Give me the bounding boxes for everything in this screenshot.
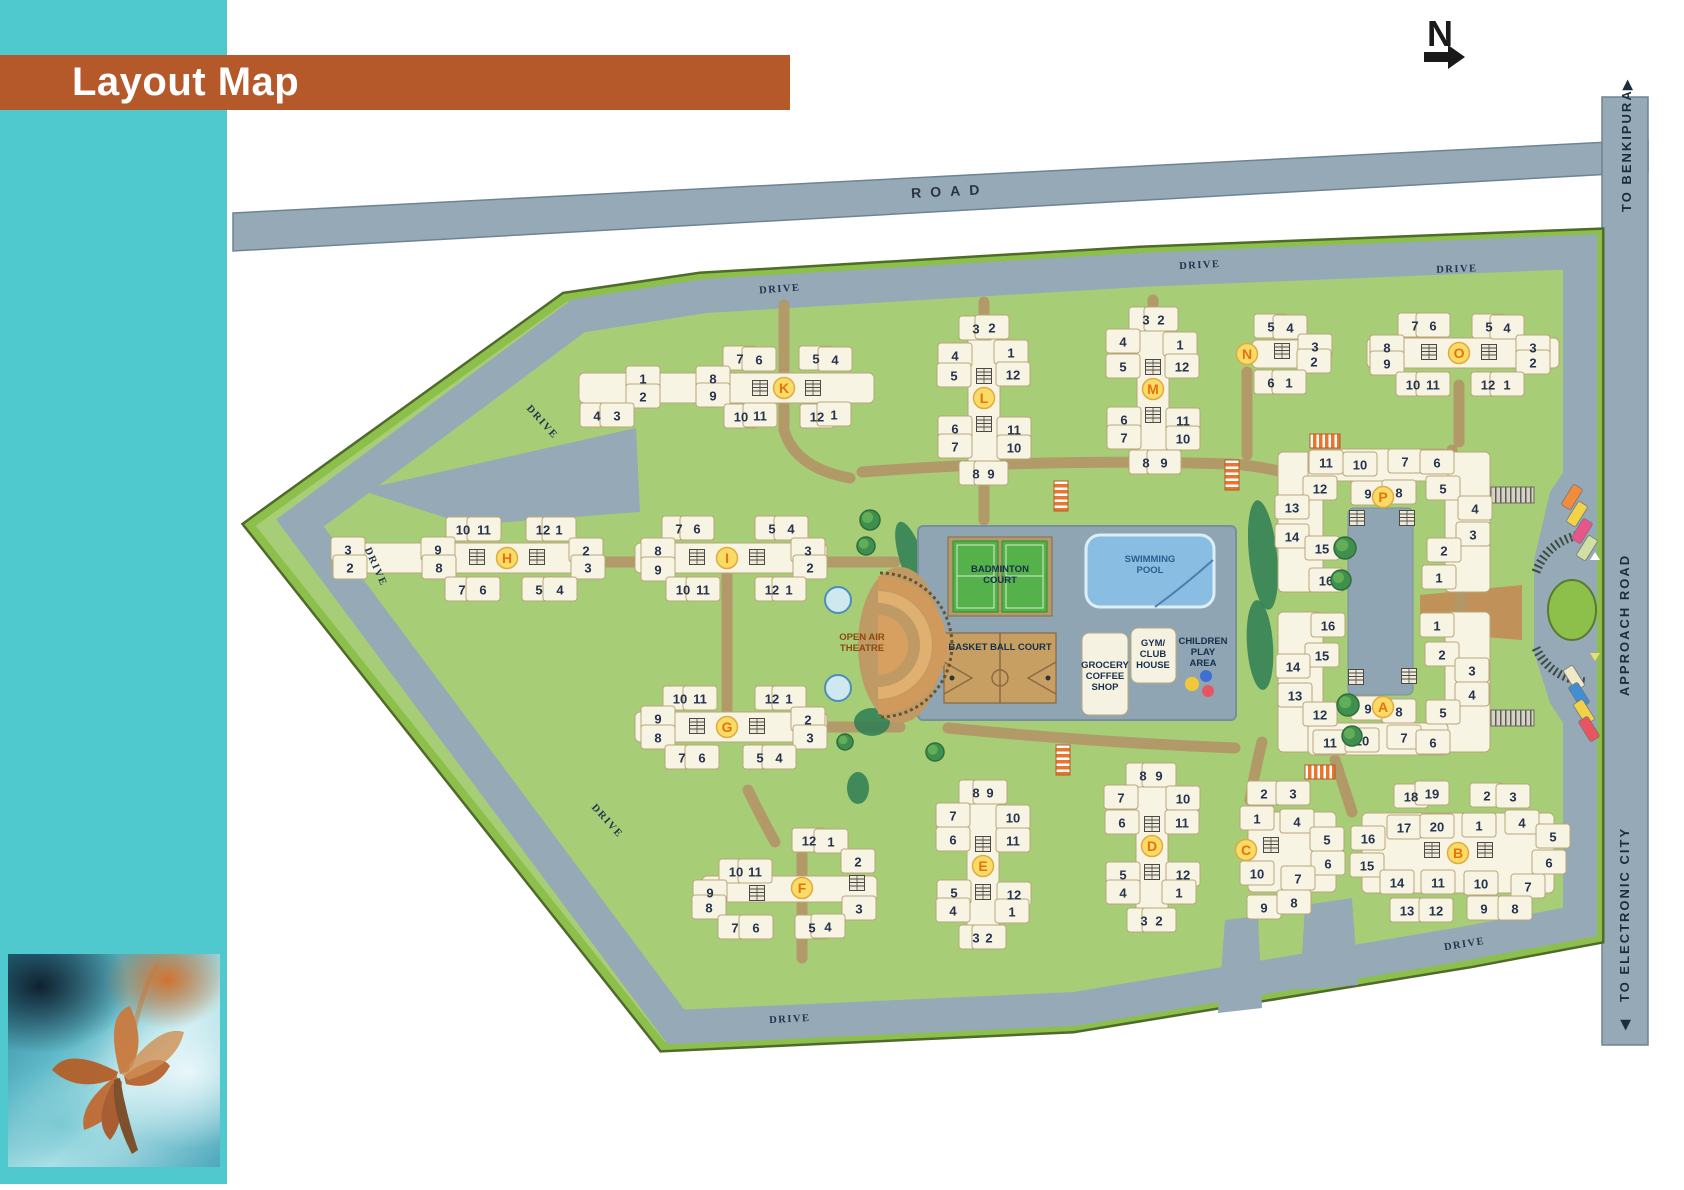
- unit-number: 5: [950, 886, 957, 901]
- stairwell-icon: [753, 381, 768, 396]
- stairwell-icon: [1425, 843, 1440, 858]
- unit-number: 2: [1438, 648, 1445, 663]
- unit-number: 15: [1360, 859, 1374, 874]
- unit-number: 10: [673, 692, 687, 707]
- unit-number: 10: [729, 865, 743, 880]
- stairwell-icon: [977, 369, 992, 384]
- unit-number: 4: [831, 353, 839, 368]
- unit-number: 4: [787, 522, 795, 537]
- play-area-dot: [1202, 685, 1214, 697]
- unit-number: 4: [1518, 816, 1526, 831]
- unit-number: 11: [1175, 816, 1189, 831]
- unit-number: 6: [479, 583, 486, 598]
- unit-number: 7: [1401, 455, 1408, 470]
- unit-number: 12: [536, 523, 550, 538]
- unit-number: 8: [1139, 769, 1146, 784]
- unit-number: 11: [1431, 876, 1445, 891]
- unit-number: 3: [1529, 341, 1536, 356]
- unit-number: 3: [1289, 787, 1296, 802]
- unit-number: 5: [1119, 868, 1126, 883]
- unit-number: 9: [1155, 769, 1162, 784]
- unit-number: 5: [1485, 320, 1492, 335]
- unit-number: 5: [1267, 320, 1274, 335]
- unit-number: 12: [1481, 378, 1495, 393]
- unit-number: 5: [1119, 360, 1126, 375]
- play-area-dot: [1200, 670, 1212, 682]
- unit-number: 9: [654, 563, 661, 578]
- unit-number: 1: [555, 523, 562, 538]
- unit-number: 3: [584, 561, 591, 576]
- unit-number: 9: [654, 712, 661, 727]
- stairwell-icon: [1146, 408, 1161, 423]
- unit-number: 12: [1176, 868, 1190, 883]
- block-letter: B: [1453, 845, 1463, 861]
- unit-number: 14: [1390, 876, 1405, 891]
- unit-number: 3: [972, 322, 979, 337]
- unit-number: 10: [1406, 378, 1420, 393]
- stairwell-icon: [690, 719, 705, 734]
- unit-number: 18: [1404, 790, 1418, 805]
- unit-number: 2: [985, 931, 992, 946]
- steps-lower: [1488, 710, 1534, 726]
- tower-courtyard: [1348, 508, 1413, 695]
- unit-number: 12: [1006, 368, 1020, 383]
- unit-number: 11: [693, 692, 707, 707]
- block-letter: M: [1147, 381, 1159, 397]
- unit-number: 1: [785, 583, 792, 598]
- unit-number: 13: [1400, 904, 1414, 919]
- stairwell-icon: [750, 719, 765, 734]
- unit-number: 2: [1440, 544, 1447, 559]
- unit-number: 9: [986, 786, 993, 801]
- unit-number: 5: [950, 369, 957, 384]
- vegetation-band: [847, 772, 869, 804]
- unit-number: 7: [1120, 431, 1127, 446]
- unit-number: 7: [951, 440, 958, 455]
- tree-icon: [926, 743, 944, 761]
- unit-number: 4: [1503, 321, 1511, 336]
- block-letter: D: [1147, 838, 1157, 854]
- stairwell-icon: [850, 876, 865, 891]
- unit-number: 2: [988, 321, 995, 336]
- unit-number: 8: [1511, 902, 1518, 917]
- unit-number: 16: [1361, 832, 1375, 847]
- unit-number: 13: [1288, 689, 1302, 704]
- unit-number: 11: [1426, 378, 1440, 393]
- unit-number: 11: [1319, 456, 1333, 471]
- unit-number: 8: [435, 561, 442, 576]
- unit-number: 10: [1176, 792, 1190, 807]
- unit-number: 6: [951, 422, 958, 437]
- unit-number: 14: [1285, 530, 1300, 545]
- unit-number: 6: [1324, 857, 1331, 872]
- unit-number: 5: [1549, 830, 1556, 845]
- unit-number: 6: [1118, 816, 1125, 831]
- unit-number: 1: [1176, 338, 1183, 353]
- unit-number: 12: [1429, 904, 1443, 919]
- unit-number: 8: [972, 467, 979, 482]
- stairwell-icon: [750, 550, 765, 565]
- unit-number: 2: [1483, 789, 1490, 804]
- unit-number: 8: [709, 372, 716, 387]
- unit-number: 15: [1315, 542, 1329, 557]
- stairwell-icon: [1264, 838, 1279, 853]
- unit-number: 5: [535, 583, 542, 598]
- unit-number: 9: [1364, 487, 1371, 502]
- unit-number: 7: [731, 921, 738, 936]
- steps-upper: [1488, 487, 1534, 503]
- unit-number: 3: [1469, 528, 1476, 543]
- unit-number: 12: [1175, 360, 1189, 375]
- unit-number: 1: [830, 408, 837, 423]
- unit-number: 4: [1293, 815, 1301, 830]
- unit-number: 8: [654, 544, 661, 559]
- unit-number: 1: [785, 692, 792, 707]
- unit-number: 20: [1430, 820, 1444, 835]
- unit-number: 3: [1509, 790, 1516, 805]
- stairwell-icon: [976, 885, 991, 900]
- stairwell-icon: [806, 381, 821, 396]
- unit-number: 2: [804, 713, 811, 728]
- amenity-zone: BADMINTONCOURT SWIMMINGPOOL BASKET BALL …: [918, 526, 1236, 720]
- unit-number: 10: [1176, 432, 1190, 447]
- unit-number: 5: [1323, 833, 1330, 848]
- unit-number: 10: [1250, 867, 1264, 882]
- stairwell-icon: [1349, 670, 1364, 685]
- unit-number: 10: [734, 410, 748, 425]
- unit-number: 14: [1286, 660, 1301, 675]
- tree-icon: [1342, 726, 1362, 746]
- unit-number: 4: [775, 751, 783, 766]
- unit-number: 5: [768, 522, 775, 537]
- block-letter: O: [1454, 345, 1465, 361]
- play-area-dot: [1185, 677, 1199, 691]
- unit-number: 8: [1142, 456, 1149, 471]
- unit-number: 6: [1267, 376, 1274, 391]
- unit-number: 1: [1253, 812, 1260, 827]
- stairwell-icon: [750, 886, 765, 901]
- unit-number: 11: [1323, 736, 1337, 751]
- unit-number: 12: [1313, 708, 1327, 723]
- block-letter: E: [978, 858, 987, 874]
- unit-number: 4: [824, 920, 832, 935]
- unit-number: 12: [802, 834, 816, 849]
- unit-number: 2: [1157, 313, 1164, 328]
- unit-number: 1: [1433, 619, 1440, 634]
- unit-number: 6: [755, 353, 762, 368]
- to-electronic-city-label: TO ELECTRONIC CITY: [1617, 827, 1632, 1002]
- unit-number: 3: [1140, 914, 1147, 929]
- hoop-left: [950, 676, 955, 681]
- unit-number: 7: [678, 751, 685, 766]
- block-letter: A: [1378, 699, 1388, 715]
- stairwell-icon: [470, 550, 485, 565]
- tree-icon: [1334, 537, 1356, 559]
- unit-number: 10: [1353, 458, 1367, 473]
- unit-number: 11: [1007, 423, 1021, 438]
- unit-number: 7: [1294, 872, 1301, 887]
- unit-number: 6: [1120, 413, 1127, 428]
- zebra-crossing: [1054, 481, 1068, 511]
- to-benkipura-arrow-icon: ▶: [1619, 78, 1634, 91]
- unit-number: 4: [1286, 321, 1294, 336]
- unit-number: 3: [1142, 313, 1149, 328]
- zebra-crossing: [1056, 745, 1070, 775]
- unit-number: 12: [1007, 888, 1021, 903]
- stairwell-icon: [1422, 345, 1437, 360]
- water-feature-lower: [825, 675, 851, 701]
- unit-number: 9: [1383, 357, 1390, 372]
- unit-number: 6: [949, 833, 956, 848]
- unit-number: 3: [1468, 664, 1475, 679]
- stairwell-icon: [690, 550, 705, 565]
- unit-number: 7: [1411, 319, 1418, 334]
- unit-number: 12: [810, 410, 824, 425]
- unit-number: 1: [1435, 571, 1442, 586]
- unit-number: 4: [949, 904, 957, 919]
- unit-number: 16: [1321, 619, 1335, 634]
- unit-number: 10: [676, 583, 690, 598]
- unit-number: 5: [1439, 482, 1446, 497]
- theatre-label: OPEN AIRTHEATRE: [839, 632, 885, 654]
- stairwell-icon: [976, 837, 991, 852]
- unit-number: 2: [1529, 356, 1536, 371]
- unit-number: 5: [1439, 706, 1446, 721]
- unit-number: 9: [706, 886, 713, 901]
- drive-label: DRIVE: [769, 1013, 811, 1026]
- unit-number: 11: [1006, 834, 1020, 849]
- unit-number: 1: [1007, 346, 1014, 361]
- unit-number: 7: [949, 809, 956, 824]
- unit-number: 8: [1395, 705, 1402, 720]
- unit-number: 11: [748, 865, 762, 880]
- unit-number: 10: [1006, 811, 1020, 826]
- block-letter: L: [980, 390, 989, 406]
- unit-number: 1: [1008, 905, 1015, 920]
- unit-number: 13: [1285, 501, 1299, 516]
- unit-number: 2: [806, 561, 813, 576]
- unit-number: 7: [736, 352, 743, 367]
- unit-number: 10: [1474, 877, 1488, 892]
- unit-number: 8: [705, 901, 712, 916]
- unit-number: 11: [753, 409, 767, 424]
- stairwell-icon: [1275, 344, 1290, 359]
- block-letter: N: [1242, 346, 1252, 362]
- tree-icon: [860, 510, 880, 530]
- unit-number: 6: [1433, 456, 1440, 471]
- unit-number: 9: [987, 467, 994, 482]
- north-indicator: N: [1424, 13, 1465, 69]
- unit-number: 9: [1160, 456, 1167, 471]
- unit-number: 2: [639, 390, 646, 405]
- hoop-right: [1046, 676, 1051, 681]
- layout-map-canvas: ROAD TO BENKIPURA ▶ APPROACH ROAD TO ELE…: [0, 0, 1684, 1190]
- unit-number: 7: [1117, 791, 1124, 806]
- drive-label: DRIVE: [1179, 259, 1221, 272]
- unit-number: 10: [1007, 441, 1021, 456]
- block-letter: F: [798, 880, 807, 896]
- unit-number: 3: [806, 731, 813, 746]
- zebra-crossing: [1225, 460, 1239, 490]
- stairwell-icon: [1482, 345, 1497, 360]
- unit-number: 2: [1310, 355, 1317, 370]
- unit-number: 3: [1311, 340, 1318, 355]
- drive-stub-1: [1218, 916, 1262, 1013]
- unit-number: 2: [1260, 787, 1267, 802]
- unit-number: 6: [698, 751, 705, 766]
- unit-number: 7: [458, 583, 465, 598]
- block-letter: I: [725, 550, 729, 566]
- unit-number: 9: [434, 543, 441, 558]
- unit-number: 9: [1480, 902, 1487, 917]
- tree-icon: [1331, 570, 1351, 590]
- tree-icon: [857, 537, 875, 555]
- unit-number: 8: [1395, 486, 1402, 501]
- unit-number: 3: [855, 902, 862, 917]
- stairwell-icon: [1350, 511, 1365, 526]
- zebra-crossing: [1310, 434, 1340, 448]
- unit-number: 3: [613, 409, 620, 424]
- to-benkipura-label: TO BENKIPURA: [1619, 89, 1634, 212]
- unit-number: 9: [709, 389, 716, 404]
- block-letter: P: [1378, 489, 1387, 505]
- unit-number: 5: [812, 352, 819, 367]
- stairwell-icon: [1145, 817, 1160, 832]
- unit-number: 4: [1468, 688, 1476, 703]
- unit-number: 4: [556, 583, 564, 598]
- unit-number: 2: [346, 561, 353, 576]
- unit-number: 17: [1397, 821, 1411, 836]
- unit-number: 11: [696, 583, 710, 598]
- unit-number: 11: [1176, 414, 1190, 429]
- unit-number: 4: [951, 349, 959, 364]
- unit-number: 6: [752, 921, 759, 936]
- unit-number: 10: [456, 523, 470, 538]
- unit-number: 8: [972, 786, 979, 801]
- unit-number: 2: [1155, 914, 1162, 929]
- unit-number: 9: [1260, 901, 1267, 916]
- unit-number: 3: [804, 544, 811, 559]
- zebra-crossing: [1305, 765, 1335, 779]
- water-feature-upper: [825, 587, 851, 613]
- unit-number: 4: [1119, 886, 1127, 901]
- unit-number: 4: [593, 409, 601, 424]
- unit-number: 3: [972, 931, 979, 946]
- gym-label: GYM/CLUBHOUSE: [1136, 638, 1170, 671]
- unit-number: 4: [1471, 502, 1479, 517]
- unit-number: 11: [477, 523, 491, 538]
- unit-number: 6: [1429, 319, 1436, 334]
- unit-number: 4: [1119, 335, 1127, 350]
- unit-number: 1: [1285, 376, 1292, 391]
- unit-number: 2: [582, 544, 589, 559]
- stairwell-icon: [1146, 360, 1161, 375]
- unit-number: 19: [1425, 787, 1439, 802]
- unit-number: 15: [1315, 649, 1329, 664]
- block-letter: K: [779, 380, 789, 396]
- block-letter: H: [502, 550, 512, 566]
- stairwell-icon: [530, 550, 545, 565]
- tree-icon: [1337, 694, 1359, 716]
- unit-number: 12: [765, 692, 779, 707]
- entrance-island: [1548, 580, 1596, 640]
- unit-number: 3: [344, 543, 351, 558]
- unit-number: 12: [765, 583, 779, 598]
- basketball-label: BASKET BALL COURT: [948, 642, 1051, 653]
- stairwell-icon: [1478, 843, 1493, 858]
- unit-number: 5: [808, 921, 815, 936]
- unit-number: 1: [827, 835, 834, 850]
- stairwell-icon: [977, 417, 992, 432]
- unit-number: 7: [675, 522, 682, 537]
- tree-icon: [837, 734, 853, 750]
- unit-number: 6: [693, 522, 700, 537]
- block-letter: G: [722, 719, 733, 735]
- unit-number: 9: [1364, 702, 1371, 717]
- unit-number: 12: [1313, 482, 1327, 497]
- unit-number: 8: [1290, 896, 1297, 911]
- drive-label: DRIVE: [1436, 263, 1478, 275]
- unit-number: 7: [1400, 731, 1407, 746]
- unit-number: 1: [639, 372, 646, 387]
- approach-road-label: APPROACH ROAD: [1617, 554, 1632, 696]
- unit-number: 2: [854, 855, 861, 870]
- unit-number: 5: [756, 751, 763, 766]
- unit-number: 1: [1175, 886, 1182, 901]
- stairwell-icon: [1145, 865, 1160, 880]
- block-letter: C: [1241, 842, 1251, 858]
- unit-number: 1: [1503, 378, 1510, 393]
- stairwell-icon: [1402, 669, 1417, 684]
- unit-number: 8: [1383, 341, 1390, 356]
- unit-number: 7: [1524, 880, 1531, 895]
- unit-number: 6: [1545, 856, 1552, 871]
- unit-number: 6: [1429, 736, 1436, 751]
- to-electronic-city-arrow-icon: ◀: [1617, 1018, 1632, 1031]
- unit-number: 1: [1475, 819, 1482, 834]
- stairwell-icon: [1400, 511, 1415, 526]
- unit-number: 8: [654, 731, 661, 746]
